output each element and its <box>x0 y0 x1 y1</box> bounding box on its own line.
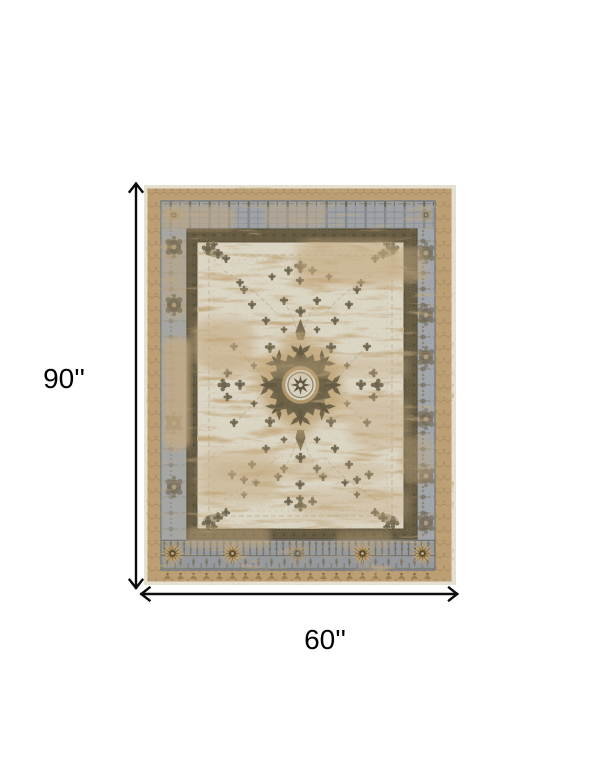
svg-text:90'': 90'' <box>43 363 85 394</box>
svg-text:60'': 60'' <box>304 624 346 655</box>
